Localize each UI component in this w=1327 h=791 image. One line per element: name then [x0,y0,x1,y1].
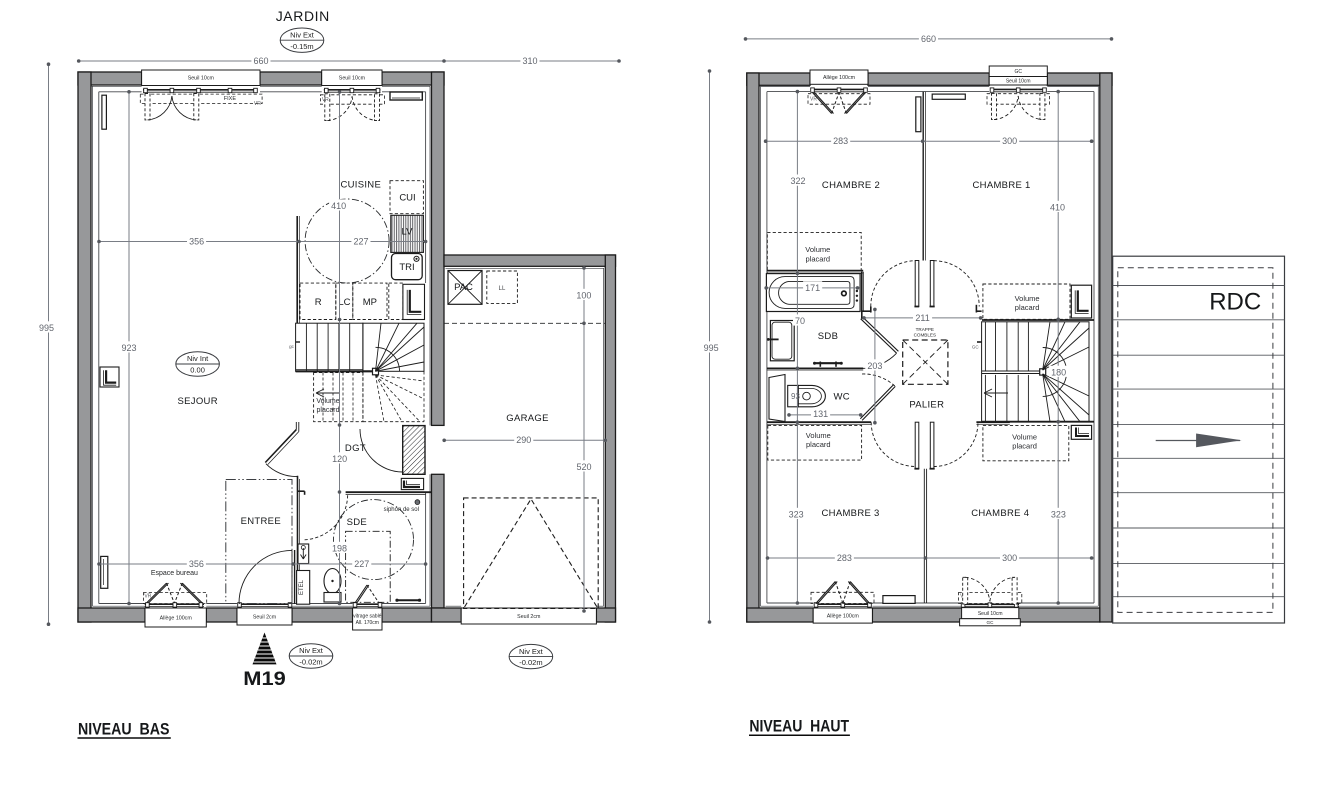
svg-text:CHAMBRE 2: CHAMBRE 2 [822,180,880,191]
svg-text:-0.15m: -0.15m [290,42,313,51]
svg-text:0.00: 0.00 [190,366,205,375]
svg-text:CHAMBRE 3: CHAMBRE 3 [822,508,880,519]
svg-text:Allège 100cm: Allège 100cm [160,615,193,621]
svg-text:283: 283 [837,553,852,563]
svg-text:227: 227 [353,236,368,246]
svg-text:NIVEAU HAUT: NIVEAU HAUT [749,718,849,736]
svg-text:356: 356 [189,559,204,569]
svg-text:TRAPPE: TRAPPE [916,327,934,332]
svg-text:JARDIN: JARDIN [276,8,330,24]
svg-text:171: 171 [805,283,820,293]
svg-text:180: 180 [1051,367,1066,377]
svg-text:Volume: Volume [1015,294,1040,303]
svg-text:Allège 100cm: Allège 100cm [823,75,856,81]
svg-text:CUISINE: CUISINE [340,180,381,191]
svg-text:323: 323 [1051,509,1066,519]
svg-text:COMBLES: COMBLES [914,333,936,338]
svg-text:GC: GC [972,345,980,350]
svg-text:CHAMBRE 1: CHAMBRE 1 [973,180,1031,191]
svg-text:322: 322 [790,176,805,186]
svg-text:M19: M19 [243,668,286,690]
svg-text:Seuil 10cm: Seuil 10cm [978,611,1003,617]
svg-text:placard: placard [1012,442,1037,451]
svg-text:Seuil 10cm: Seuil 10cm [188,76,215,82]
svg-text:CUI: CUI [399,192,415,203]
svg-text:LC: LC [338,297,350,308]
svg-text:660: 660 [921,34,936,44]
svg-text:TRI: TRI [399,262,414,273]
svg-text:FIXE: FIXE [224,96,237,102]
svg-text:Seuil 10cm: Seuil 10cm [1006,79,1031,85]
svg-text:Volume: Volume [805,245,830,254]
svg-text:placard: placard [805,255,830,264]
svg-text:227: 227 [354,559,369,569]
svg-text:RDC: RDC [1209,289,1261,316]
svg-text:GC: GC [987,620,995,625]
svg-text:Seuil 10cm: Seuil 10cm [339,76,366,82]
svg-text:100: 100 [576,290,591,300]
svg-text:Seuil 2cm: Seuil 2cm [253,614,277,620]
svg-text:SEJOUR: SEJOUR [178,396,218,407]
svg-text:VR: VR [322,97,329,103]
svg-text:Espace bureau: Espace bureau [151,570,198,577]
svg-text:ETEL: ETEL [299,579,305,595]
svg-text:290: 290 [516,435,531,445]
svg-text:995: 995 [39,323,54,333]
svg-text:R: R [315,297,322,308]
svg-text:198: 198 [332,543,347,553]
svg-text:MP: MP [363,297,377,308]
svg-text:660: 660 [253,56,268,66]
svg-text:SDE: SDE [347,517,367,528]
svg-text:-0.02m: -0.02m [299,658,322,667]
svg-text:-0.02m: -0.02m [519,658,542,667]
svg-text:CHAMBRE 4: CHAMBRE 4 [971,508,1029,519]
svg-text:Volume: Volume [1012,433,1037,442]
svg-text:PAC: PAC [454,282,473,293]
svg-text:300: 300 [1002,136,1017,146]
svg-text:283: 283 [833,136,848,146]
svg-text:placard: placard [317,407,340,414]
svg-text:VR: VR [254,101,261,107]
svg-text:Niv Ext: Niv Ext [519,647,544,656]
svg-text:131: 131 [813,409,828,419]
svg-text:300: 300 [1002,553,1017,563]
svg-text:410: 410 [1050,202,1065,212]
svg-text:GARAGE: GARAGE [506,413,548,424]
svg-text:NIVEAU BAS: NIVEAU BAS [78,721,170,739]
svg-text:placard: placard [1015,303,1040,312]
svg-text:211: 211 [915,313,929,323]
svg-text:Volume: Volume [806,431,831,440]
svg-text:All. 170cm: All. 170cm [356,620,379,626]
svg-text:Niv Ext: Niv Ext [290,30,315,39]
svg-text:Volume: Volume [316,398,339,405]
svg-text:LL: LL [499,286,506,292]
svg-text:923: 923 [121,343,136,353]
svg-text:siphon de sol: siphon de sol [384,507,419,513]
svg-text:70: 70 [795,316,805,326]
svg-text:WC: WC [833,392,849,403]
svg-text:520: 520 [576,462,591,472]
svg-text:203: 203 [867,361,882,371]
svg-text:Allège 100cm: Allège 100cm [827,614,860,620]
svg-text:GC: GC [1014,69,1022,75]
svg-text:LV: LV [402,226,414,237]
svg-text:120: 120 [332,454,347,464]
svg-text:PALIER: PALIER [909,399,944,410]
svg-text:gc: gc [289,344,295,349]
svg-text:placard: placard [806,440,831,449]
svg-text:410: 410 [331,201,346,211]
svg-text:310: 310 [522,56,537,66]
svg-text:Seuil 2cm: Seuil 2cm [517,614,541,620]
svg-text:SDB: SDB [818,331,838,342]
svg-text:vitrage sablé: vitrage sablé [353,614,382,620]
svg-text:356: 356 [189,236,204,246]
svg-text:Niv Ext: Niv Ext [299,646,324,655]
svg-text:93: 93 [791,392,800,401]
svg-text:995: 995 [704,343,719,353]
svg-text:323: 323 [789,509,804,519]
svg-text:Niv Int: Niv Int [187,354,209,363]
svg-text:ENTREE: ENTREE [241,516,281,527]
